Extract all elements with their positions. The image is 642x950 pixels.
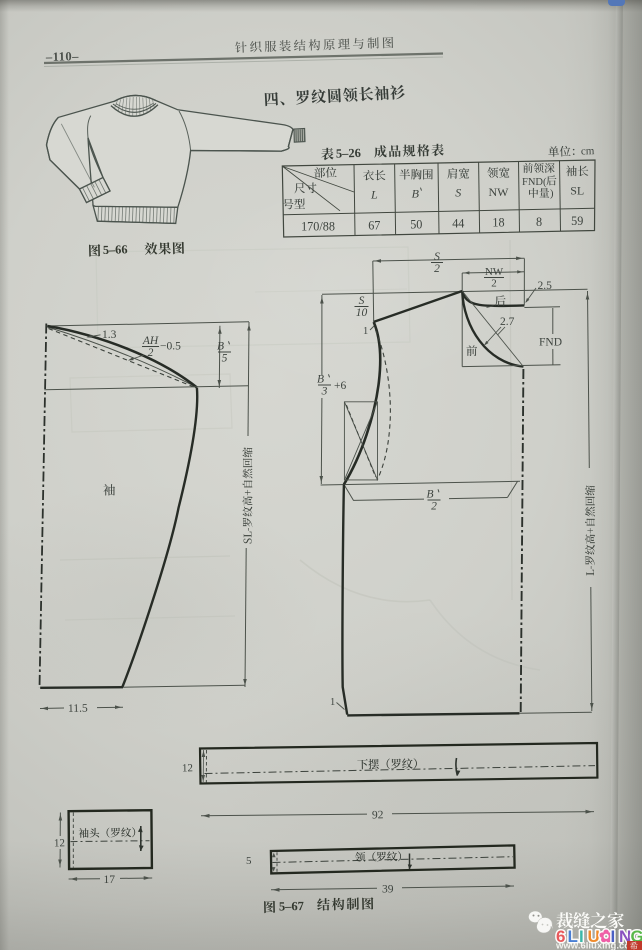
svg-text:B: B bbox=[426, 489, 433, 501]
svg-text:1: 1 bbox=[363, 326, 368, 337]
svg-text:NW: NW bbox=[489, 185, 510, 199]
svg-text:2: 2 bbox=[434, 263, 440, 275]
svg-text:2: 2 bbox=[148, 347, 154, 359]
svg-text:FND: FND bbox=[539, 337, 562, 349]
svg-text:FND(: FND( bbox=[522, 177, 547, 188]
svg-text:B: B bbox=[317, 374, 324, 386]
svg-text:59: 59 bbox=[571, 214, 583, 228]
svg-text:2.5: 2.5 bbox=[538, 280, 553, 292]
svg-text:B: B bbox=[217, 341, 224, 353]
svg-text:S: S bbox=[455, 186, 461, 200]
svg-text:S: S bbox=[434, 251, 440, 263]
svg-text:170/88: 170/88 bbox=[301, 220, 335, 234]
svg-text:5: 5 bbox=[222, 353, 228, 365]
svg-text:SL: SL bbox=[570, 183, 584, 197]
svg-text:3: 3 bbox=[321, 386, 328, 398]
svg-text:B: B bbox=[412, 187, 420, 201]
svg-text:): ) bbox=[550, 189, 554, 200]
svg-text:12: 12 bbox=[54, 837, 65, 849]
svg-text:50: 50 bbox=[410, 217, 422, 231]
svg-text:5: 5 bbox=[246, 855, 252, 867]
svg-text:1: 1 bbox=[330, 697, 335, 708]
svg-text:8: 8 bbox=[536, 215, 542, 229]
svg-text:44: 44 bbox=[452, 217, 464, 231]
svg-text:1.3: 1.3 bbox=[102, 329, 117, 341]
svg-text:L: L bbox=[370, 187, 378, 201]
svg-text:2.7: 2.7 bbox=[500, 316, 515, 328]
svg-text:67: 67 bbox=[368, 218, 380, 232]
svg-text:5–26: 5–26 bbox=[336, 146, 361, 161]
svg-text:AH: AH bbox=[142, 335, 159, 347]
svg-text:11.5: 11.5 bbox=[68, 703, 88, 715]
svg-text:92: 92 bbox=[372, 809, 384, 821]
svg-text:5–67: 5–67 bbox=[279, 899, 304, 914]
svg-text:www.6liuxing.com: www.6liuxing.com bbox=[555, 941, 639, 950]
svg-text:39: 39 bbox=[382, 884, 394, 896]
svg-text:+6: +6 bbox=[334, 380, 346, 392]
svg-text:5–66: 5–66 bbox=[103, 242, 128, 257]
svg-text:S: S bbox=[359, 295, 365, 307]
svg-text:17: 17 bbox=[104, 874, 116, 886]
svg-text:18: 18 bbox=[492, 216, 504, 230]
svg-text:10: 10 bbox=[356, 307, 368, 319]
svg-text:cm: cm bbox=[581, 145, 595, 157]
svg-text:2: 2 bbox=[491, 278, 497, 290]
svg-text:−0.5: −0.5 bbox=[160, 341, 181, 353]
svg-text:2: 2 bbox=[431, 501, 437, 513]
svg-text:NW: NW bbox=[485, 266, 504, 278]
svg-text:12: 12 bbox=[182, 762, 193, 774]
